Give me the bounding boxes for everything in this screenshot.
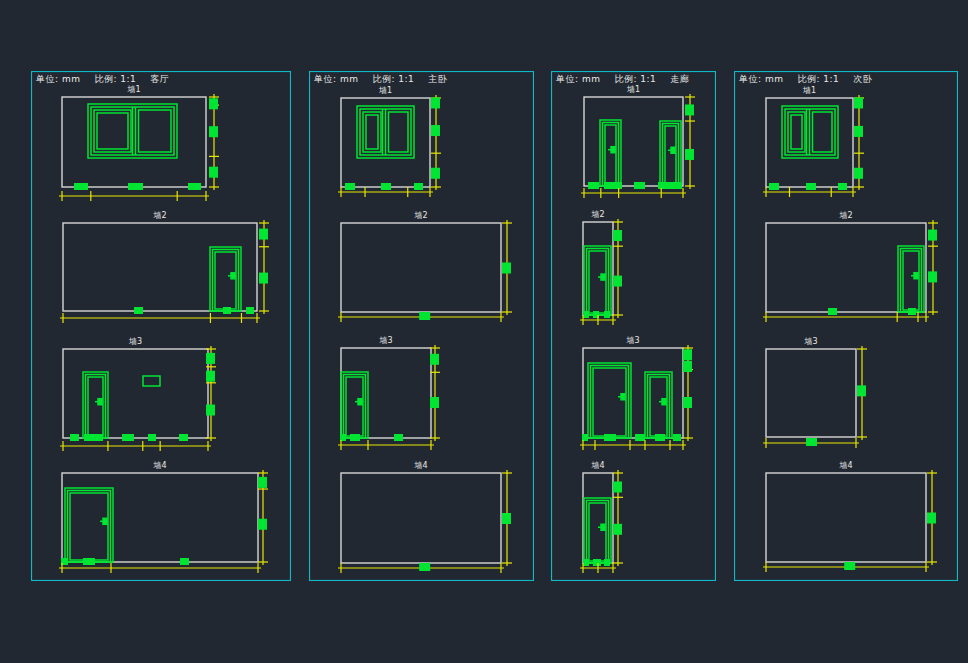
- door-handle-icon: [98, 399, 102, 405]
- dimension-marker[interactable]: [613, 524, 622, 535]
- door-handle-icon: [621, 394, 625, 400]
- dimension-line-right[interactable]: [259, 220, 269, 314]
- wall-label[interactable]: 墙4: [413, 461, 427, 470]
- wall-marker[interactable]: [838, 183, 847, 190]
- wall-label[interactable]: 墙3: [128, 337, 142, 346]
- wall-marker[interactable]: [122, 434, 134, 441]
- room-label: 主卧: [428, 74, 447, 84]
- window-elevation[interactable]: [782, 106, 838, 158]
- wall-marker[interactable]: [583, 311, 589, 318]
- wall-marker[interactable]: [84, 434, 103, 441]
- wall-marker[interactable]: [223, 307, 231, 314]
- dimension-marker[interactable]: [430, 397, 439, 408]
- dimension-marker[interactable]: [431, 125, 440, 136]
- door-elevation[interactable]: [584, 498, 611, 563]
- dimension-marker[interactable]: [259, 273, 268, 284]
- viewport-border: [735, 72, 958, 581]
- wall-label[interactable]: 墙3: [803, 337, 817, 346]
- dimension-marker[interactable]: [928, 230, 937, 241]
- scale-label: 比例: 1:1: [94, 74, 136, 84]
- dimension-marker[interactable]: [209, 126, 218, 137]
- wall-label[interactable]: 墙2: [413, 211, 427, 220]
- wall-outline[interactable]: [341, 223, 501, 312]
- dimension-marker[interactable]: [854, 126, 863, 137]
- wall-marker[interactable]: [350, 434, 360, 441]
- wall-marker[interactable]: [394, 434, 403, 441]
- panel-drawing: 墙1墙2墙3墙4: [31, 71, 291, 581]
- wall-label[interactable]: 墙4: [838, 461, 852, 470]
- scale-label: 比例: 1:1: [614, 74, 656, 84]
- wall-marker[interactable]: [381, 183, 391, 190]
- dimension-marker[interactable]: [613, 230, 622, 241]
- wall-label[interactable]: 墙2: [590, 210, 604, 219]
- dimension-marker[interactable]: [502, 263, 511, 274]
- wall-marker[interactable]: [582, 434, 588, 441]
- wall-marker[interactable]: [658, 182, 682, 189]
- dimension-marker[interactable]: [258, 519, 267, 530]
- dimension-line-right[interactable]: [854, 95, 864, 190]
- dimension-line-right[interactable]: [258, 470, 268, 565]
- wall-outline[interactable]: [766, 473, 926, 562]
- door-handle-icon: [611, 147, 615, 153]
- dimension-marker[interactable]: [806, 438, 817, 446]
- dimension-marker[interactable]: [430, 354, 439, 365]
- dimension-marker[interactable]: [683, 361, 692, 372]
- wall-outline[interactable]: [766, 223, 926, 312]
- dimension-marker[interactable]: [206, 405, 215, 416]
- wall-marker[interactable]: [604, 182, 622, 189]
- wall-marker[interactable]: [128, 183, 143, 190]
- dimension-line-bottom[interactable]: [581, 188, 686, 198]
- wall-marker[interactable]: [345, 183, 355, 190]
- dimension-line-bottom[interactable]: [59, 191, 209, 201]
- wall-marker[interactable]: [604, 559, 610, 566]
- panel-header: 单位: mm比例: 1:1主卧: [314, 73, 461, 86]
- dimension-line-right[interactable]: [613, 470, 623, 566]
- wall-marker[interactable]: [604, 434, 616, 441]
- window-elevation[interactable]: [357, 106, 414, 158]
- dimension-marker[interactable]: [502, 513, 511, 524]
- wall-marker[interactable]: [180, 558, 189, 565]
- wall-outline[interactable]: [583, 348, 683, 438]
- viewport-panel-master-bedroom[interactable]: 单位: mm比例: 1:1主卧 墙1墙2墙3墙4: [309, 71, 534, 581]
- door-elevation[interactable]: [898, 246, 924, 312]
- dimension-marker[interactable]: [419, 312, 430, 320]
- dimension-marker[interactable]: [854, 97, 863, 108]
- viewport-border: [310, 72, 534, 581]
- dimension-marker[interactable]: [685, 149, 694, 160]
- panel-drawing: 墙1墙2墙3墙4: [734, 71, 958, 581]
- dimension-line-bottom[interactable]: [338, 440, 434, 450]
- dimension-marker[interactable]: [683, 397, 692, 408]
- wall-marker[interactable]: [148, 434, 156, 441]
- wall-marker[interactable]: [74, 183, 88, 190]
- door-elevation[interactable]: [660, 121, 681, 186]
- unit-label: 单位: mm: [739, 74, 783, 84]
- door-elevation[interactable]: [341, 372, 368, 438]
- dimension-line-bottom[interactable]: [763, 562, 929, 572]
- dimension-marker[interactable]: [683, 349, 692, 360]
- dimension-marker[interactable]: [259, 229, 268, 240]
- wall-label[interactable]: 墙4: [152, 461, 166, 470]
- room-label: 走廊: [670, 74, 689, 84]
- dimension-marker[interactable]: [258, 477, 267, 488]
- dimension-marker[interactable]: [844, 562, 855, 570]
- vent-rect[interactable]: [143, 376, 160, 386]
- dimension-line-right[interactable]: [927, 470, 937, 565]
- drawing-canvas: 单位: mm比例: 1:1客厅 墙1墙2墙3墙4 单位: mm比例: 1:1主卧…: [0, 0, 968, 663]
- dimension-line-bottom[interactable]: [60, 313, 260, 323]
- wall-label[interactable]: 墙1: [378, 86, 392, 95]
- door-handle-icon: [601, 274, 605, 280]
- dimension-marker[interactable]: [613, 276, 622, 287]
- wall-marker[interactable]: [655, 434, 665, 441]
- wall-marker[interactable]: [134, 307, 143, 314]
- dimension-marker[interactable]: [685, 104, 694, 115]
- wall-label[interactable]: 墙3: [625, 336, 639, 345]
- wall-label[interactable]: 墙2: [838, 211, 852, 220]
- viewport-panel-corridor[interactable]: 单位: mm比例: 1:1走廊 墙1墙2墙3墙4: [551, 71, 716, 581]
- panel-header: 单位: mm比例: 1:1次卧: [739, 73, 886, 86]
- wall-marker[interactable]: [673, 434, 681, 441]
- wall-marker[interactable]: [340, 434, 346, 441]
- wall-outline[interactable]: [766, 349, 856, 437]
- dimension-marker[interactable]: [209, 167, 218, 178]
- wall-outline[interactable]: [62, 97, 206, 187]
- viewport-panel-living-room[interactable]: 单位: mm比例: 1:1客厅 墙1墙2墙3墙4: [31, 71, 291, 581]
- dimension-line-right[interactable]: [683, 345, 693, 441]
- scale-label: 比例: 1:1: [372, 74, 414, 84]
- dimension-marker[interactable]: [209, 98, 218, 109]
- wall-outline[interactable]: [62, 473, 258, 562]
- door-elevation[interactable]: [645, 372, 672, 438]
- dimension-marker[interactable]: [431, 97, 440, 108]
- wall-marker[interactable]: [769, 183, 779, 190]
- door-elevation[interactable]: [600, 120, 621, 186]
- dimension-line-bottom[interactable]: [338, 563, 504, 573]
- wall-marker[interactable]: [828, 308, 837, 315]
- dimension-line-bottom[interactable]: [580, 440, 686, 450]
- wall-outline[interactable]: [584, 97, 683, 186]
- wall-label[interactable]: 墙1: [802, 86, 816, 95]
- wall-marker[interactable]: [83, 558, 95, 565]
- door-handle-icon: [601, 524, 605, 530]
- unit-label: 单位: mm: [556, 74, 600, 84]
- wall-marker[interactable]: [179, 434, 188, 441]
- dimension-line-right[interactable]: [613, 219, 623, 318]
- wall-label[interactable]: 墙3: [378, 336, 392, 345]
- door-elevation[interactable]: [210, 247, 241, 311]
- wall-outline[interactable]: [341, 473, 501, 563]
- unit-label: 单位: mm: [314, 74, 358, 84]
- dimension-line-right[interactable]: [502, 220, 512, 315]
- door-handle-icon: [662, 399, 666, 405]
- dimension-marker[interactable]: [927, 513, 936, 524]
- wall-outline[interactable]: [341, 348, 431, 438]
- door-elevation[interactable]: [83, 372, 108, 438]
- dimension-marker[interactable]: [431, 168, 440, 179]
- wall-marker[interactable]: [188, 183, 201, 190]
- wall-marker[interactable]: [588, 182, 599, 189]
- viewport-border: [552, 72, 716, 581]
- door-handle-icon: [358, 399, 362, 405]
- door-handle-icon: [231, 273, 235, 279]
- wall-label[interactable]: 墙4: [590, 461, 604, 470]
- wall-label[interactable]: 墙1: [626, 85, 640, 94]
- dimension-marker[interactable]: [419, 563, 430, 571]
- wall-marker[interactable]: [246, 307, 254, 314]
- window-elevation[interactable]: [88, 104, 177, 158]
- wall-marker[interactable]: [634, 182, 645, 189]
- room-label: 客厅: [150, 74, 169, 84]
- viewport-panel-second-bedroom[interactable]: 单位: mm比例: 1:1次卧 墙1墙2墙3墙4: [734, 71, 958, 581]
- panel-header: 单位: mm比例: 1:1客厅: [36, 73, 183, 86]
- dimension-marker[interactable]: [854, 168, 863, 179]
- wall-label[interactable]: 墙1: [126, 85, 140, 94]
- dimension-marker[interactable]: [206, 371, 215, 382]
- wall-marker[interactable]: [414, 183, 423, 190]
- wall-marker[interactable]: [806, 183, 816, 190]
- wall-marker[interactable]: [70, 434, 79, 441]
- wall-marker[interactable]: [583, 559, 589, 566]
- wall-label[interactable]: 墙2: [152, 211, 166, 220]
- dimension-line-right[interactable]: [502, 470, 512, 566]
- wall-marker[interactable]: [604, 311, 610, 318]
- room-label: 次卧: [853, 74, 872, 84]
- dimension-line-right[interactable]: [431, 95, 441, 190]
- wall-marker[interactable]: [593, 559, 601, 566]
- dimension-line-bottom[interactable]: [338, 312, 504, 322]
- panel-drawing: 墙1墙2墙3墙4: [309, 71, 534, 581]
- door-elevation[interactable]: [65, 488, 113, 562]
- dimension-line-bottom[interactable]: [763, 438, 859, 448]
- dimension-line-bottom[interactable]: [60, 441, 211, 451]
- panel-header: 单位: mm比例: 1:1走廊: [556, 73, 703, 86]
- door-handle-icon: [103, 518, 107, 524]
- door-elevation[interactable]: [584, 246, 611, 315]
- door-handle-icon: [914, 273, 918, 279]
- dimension-line-bottom[interactable]: [763, 312, 929, 322]
- dimension-marker[interactable]: [206, 353, 215, 364]
- panel-drawing: 墙1墙2墙3墙4: [551, 71, 716, 581]
- dimension-line-right[interactable]: [857, 346, 867, 440]
- door-handle-icon: [671, 147, 675, 153]
- dimension-marker[interactable]: [928, 271, 937, 282]
- dimension-marker[interactable]: [613, 482, 622, 493]
- wall-outline[interactable]: [63, 223, 257, 311]
- wall-marker[interactable]: [908, 308, 916, 315]
- dimension-line-right[interactable]: [928, 220, 938, 315]
- dimension-marker[interactable]: [857, 385, 866, 396]
- dimension-line-right[interactable]: [685, 94, 695, 189]
- wall-marker[interactable]: [635, 434, 645, 441]
- door-elevation[interactable]: [588, 363, 631, 438]
- unit-label: 单位: mm: [36, 74, 80, 84]
- scale-label: 比例: 1:1: [797, 74, 839, 84]
- dimension-line-right[interactable]: [209, 94, 219, 190]
